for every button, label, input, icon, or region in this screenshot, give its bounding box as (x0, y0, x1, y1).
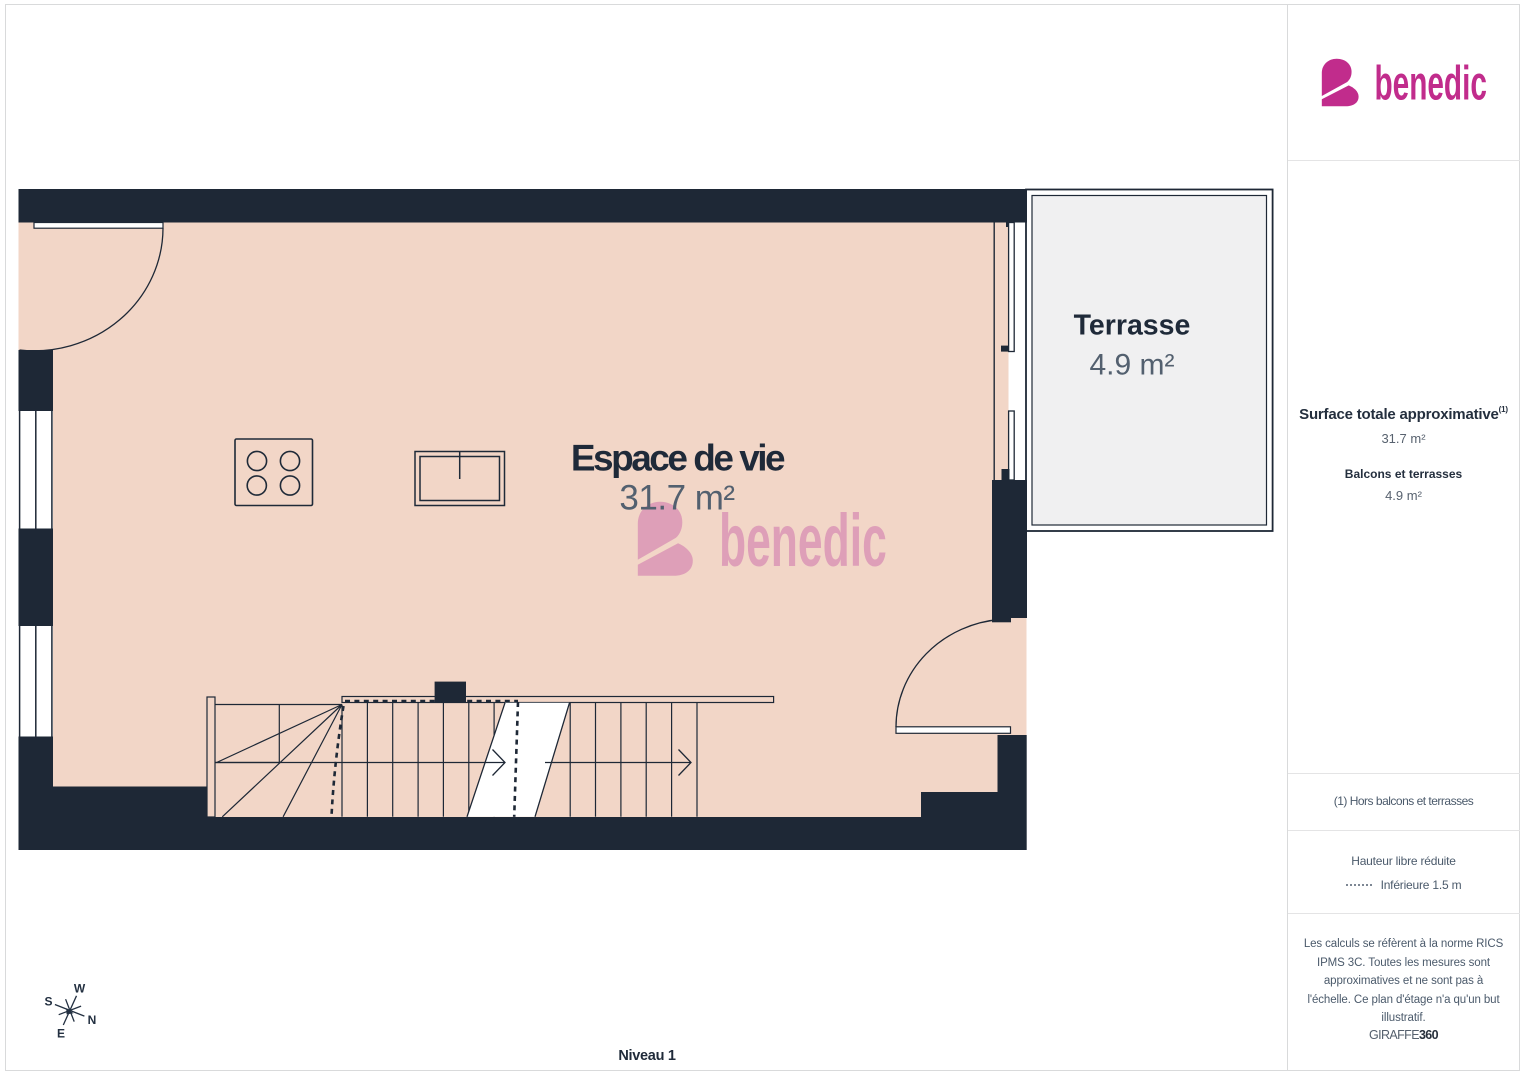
svg-text:S: S (44, 995, 52, 1009)
svg-text:W: W (74, 982, 86, 996)
svg-text:4.9 m²: 4.9 m² (1089, 349, 1174, 382)
svg-text:E: E (57, 1027, 65, 1041)
svg-text:benedic: benedic (1375, 58, 1487, 108)
svg-text:Espace de vie: Espace de vie (571, 438, 785, 479)
svg-text:Niveau 1: Niveau 1 (618, 1048, 675, 1064)
svg-text:N: N (88, 1013, 97, 1027)
svg-text:Terrasse: Terrasse (1074, 310, 1191, 342)
svg-text:31.7 m²: 31.7 m² (619, 479, 734, 518)
svg-text:benedic: benedic (719, 499, 887, 581)
